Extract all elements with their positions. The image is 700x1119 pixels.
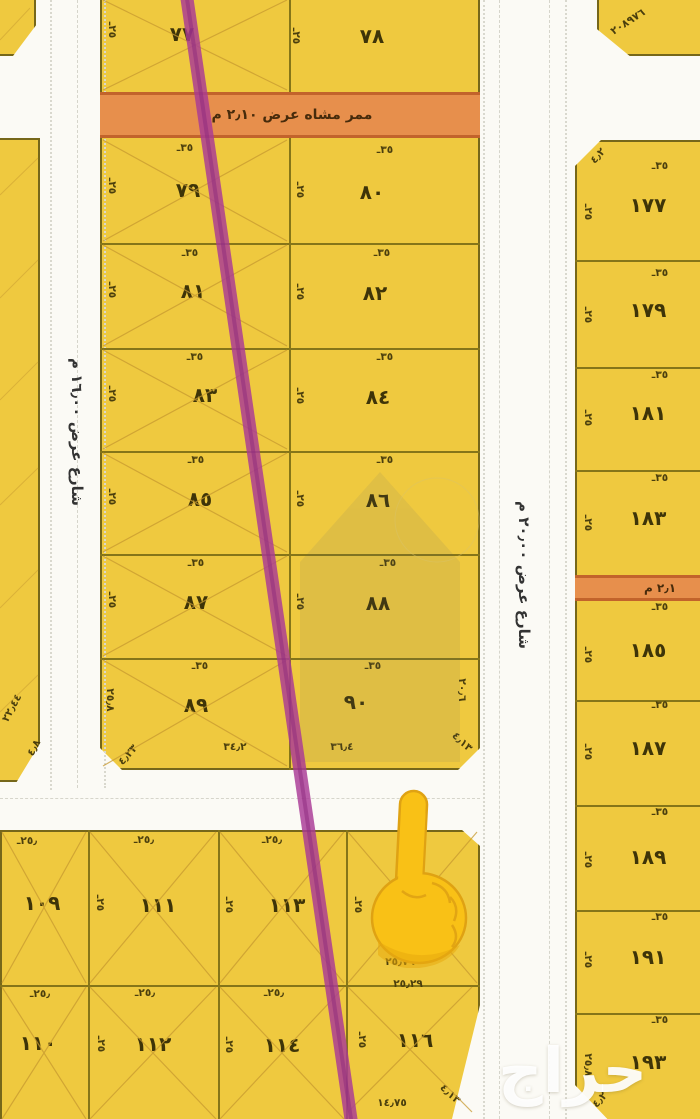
parcel-185-depth-label: ٢٥ـ: [582, 647, 594, 663]
parcel-78-number: ٧٨: [360, 24, 384, 48]
parcel-193-width-label: ٣٥ـ: [652, 1014, 668, 1026]
parcel-113-number: ١١٣: [269, 893, 306, 917]
lot-line: [346, 830, 348, 1119]
lot-line: [575, 910, 700, 912]
parcel-113-depth-label: ٢٥ـ: [223, 897, 235, 913]
parcel-86-width-label: ٣٥ـ: [377, 454, 393, 466]
parcel-88-depth-label: ٢٥ـ: [294, 594, 306, 610]
parcel-116-depth-label: ٢٥ـ: [356, 1032, 368, 1048]
parcel-177-depth-label: ٢٥ـ: [582, 204, 594, 220]
parcel-85-width-label: ٣٥ـ: [188, 454, 204, 466]
lot-line: [575, 700, 700, 702]
parcel-90-number: ٩٠: [344, 690, 368, 714]
street-20m-label: شارع عرض ٢٠٫٠٠ م: [515, 501, 533, 649]
brand-watermark: حراج: [498, 1034, 647, 1107]
parcel-112-number: ١١٢: [135, 1032, 172, 1056]
parcel-83-width-label: ٣٥ـ: [187, 351, 203, 363]
parcel-109-number: ١٠٩: [24, 891, 61, 915]
corner-parcel-top-left: [0, 0, 36, 56]
lot-line: [575, 805, 700, 807]
lot-line: [218, 830, 220, 1119]
parcel-185-width-label: ٣٥ـ: [652, 601, 668, 613]
parcel-87-depth-label: ٢٥ـ: [106, 592, 118, 608]
parcel-189-number: ١٨٩: [630, 845, 667, 869]
parcel-112-width-label: ٢٥٫ـ: [135, 987, 155, 999]
parcel-80-depth-label: ٢٥ـ: [294, 182, 306, 198]
street-20m-centerline-a: [499, 0, 500, 1119]
parcel-179-width-label: ٣٥ـ: [652, 267, 668, 279]
parcel-85-number: ٨٥: [188, 487, 212, 511]
parcel-110-width-label: ٢٥٫ـ: [30, 988, 50, 1000]
parcel-79-depth-label: ٢٥ـ: [106, 178, 118, 194]
parcel-79-width-label: ٣٥ـ: [177, 142, 193, 154]
parcel-191-number: ١٩١: [630, 945, 667, 969]
parcel-111-width-label: ٢٥٫ـ: [134, 834, 154, 846]
street-20m-centerline-b: [549, 0, 550, 1119]
parcel-116-top-label-b: ٢٥٫٢٩: [393, 978, 423, 990]
parcel-185-number: ١٨٥: [630, 638, 667, 662]
parcel-191-width-label: ٣٥ـ: [652, 911, 668, 923]
parcel-111-depth-label: ٢٥ـ: [94, 895, 106, 911]
parcel-90-width-label: ٣٥ـ: [365, 660, 381, 672]
parcel-89-bottom-label: ٣٤٫٢: [223, 741, 246, 753]
parcel-110-number: ١١٠: [20, 1031, 57, 1055]
parcel-187-width-label: ٣٥ـ: [652, 699, 668, 711]
parcel-90-depth-label: ٢٠٫٦: [456, 678, 468, 701]
parcel-183-depth-label: ٢٥ـ: [582, 515, 594, 531]
parcel-81-width-label: ٣٥ـ: [182, 247, 198, 259]
street-20m-edge-right: [565, 0, 567, 1119]
lot-line: [575, 367, 700, 369]
parcel-81-number: ٨١: [181, 279, 205, 303]
lot-line: [88, 830, 90, 1119]
parcel-191-depth-label: ٢٥ـ: [582, 952, 594, 968]
parcel-114-depth-label: ٢٥ـ: [223, 1037, 235, 1053]
parcel-86-number: ٨٦: [366, 488, 390, 512]
pointing-up-finger-icon: [362, 783, 472, 968]
parcel-88-number: ٨٨: [366, 591, 390, 615]
parcel-81-depth-label: ٢٥ـ: [106, 282, 118, 298]
parcel-111-number: ١١١: [140, 893, 177, 917]
parcel-179-depth-label: ٢٥ـ: [582, 307, 594, 323]
parcel-83-depth-label: ٢٥ـ: [106, 386, 118, 402]
street-20m-edge-left: [483, 0, 485, 1119]
block-right: [575, 140, 700, 1119]
parcel-88-width-label: ٣٥ـ: [380, 557, 396, 569]
parcel-80-number: ٨٠: [360, 180, 384, 204]
parcel-179-number: ١٧٩: [630, 298, 667, 322]
parcel-89-number: ٨٩: [184, 693, 208, 717]
lot-line: [575, 1013, 700, 1015]
parcel-84-width-label: ٣٥ـ: [377, 351, 393, 363]
walkway-right-label: ٢٫١ م: [644, 581, 676, 595]
walkway-upper-label: ممر مشاه عرض ٢٫١٠ م: [212, 107, 373, 123]
plat-map: ممر مشاه عرض ٢٫١٠ م ٢٫١ م شارع عرض ١٦٫٠٠…: [0, 0, 700, 1119]
parcel-116-bottom-label: ١٤٫٧٥: [377, 1097, 407, 1109]
parcel-87-number: ٨٧: [184, 590, 208, 614]
parcel-82-number: ٨٢: [363, 281, 387, 305]
parcel-83-number: ٨٣: [193, 383, 217, 407]
parcel-89-width-label: ٣٥ـ: [192, 660, 208, 672]
lot-line: [575, 260, 700, 262]
parcel-82-width-label: ٣٥ـ: [374, 247, 390, 259]
parcel-181-width-label: ٣٥ـ: [652, 369, 668, 381]
parcel-87-width-label: ٣٥ـ: [188, 557, 204, 569]
parcel-177-number: ١٧٧: [630, 193, 667, 217]
parcel-84-depth-label: ٢٥ـ: [294, 388, 306, 404]
parcel-189-depth-label: ٢٥ـ: [582, 852, 594, 868]
parcel-82-depth-label: ٢٥ـ: [294, 284, 306, 300]
parcel-183-number: ١٨٣: [630, 506, 667, 530]
parcel-183-width-label: ٣٥ـ: [652, 472, 668, 484]
left-edge-parcel-strip: [0, 138, 40, 782]
parcel-77-number: ٧٧: [170, 22, 194, 46]
parcel-177-width-label: ٣٥ـ: [652, 160, 668, 172]
parcel-181-number: ١٨١: [630, 401, 667, 425]
pedestrian-walkway-right: [575, 575, 700, 601]
parcel-79-number: ٧٩: [176, 178, 200, 202]
street-16m-edge-left: [50, 0, 52, 790]
parcel-114-width-label: ٢٥٫ـ: [264, 987, 284, 999]
parcel-187-number: ١٨٧: [630, 736, 667, 760]
parcel-78-depth-label: ٢٥ـ: [290, 28, 302, 44]
parcel-85-depth-label: ٢٥ـ: [106, 489, 118, 505]
parcel-189-width-label: ٣٥ـ: [652, 806, 668, 818]
parcel-113-width-label: ٢٥٫ـ: [262, 834, 282, 846]
parcel-89-depth-label: ٢٥٫٨: [104, 688, 116, 711]
parcel-112-depth-label: ٢٥ـ: [95, 1036, 107, 1052]
parcel-77-depth-label: ٢٥ـ: [106, 22, 118, 38]
parcel-109-width-label: ٢٥٫ـ: [17, 835, 37, 847]
parcel-80-width-label: ٣٥ـ: [377, 144, 393, 156]
parcel-116-number: ١١٦: [397, 1028, 434, 1052]
parcel-86-depth-label: ٢٥ـ: [294, 491, 306, 507]
parcel-187-depth-label: ٢٥ـ: [582, 744, 594, 760]
parcel-181-depth-label: ٢٥ـ: [582, 410, 594, 426]
lot-line: [575, 470, 700, 472]
street-16m-label: شارع عرض ١٦٫٠٠ م: [68, 358, 86, 506]
parcel-114-number: ١١٤: [264, 1033, 301, 1057]
parcel-90-bottom-label: ٣٦٫٤: [330, 741, 353, 753]
parcel-84-number: ٨٤: [366, 385, 390, 409]
